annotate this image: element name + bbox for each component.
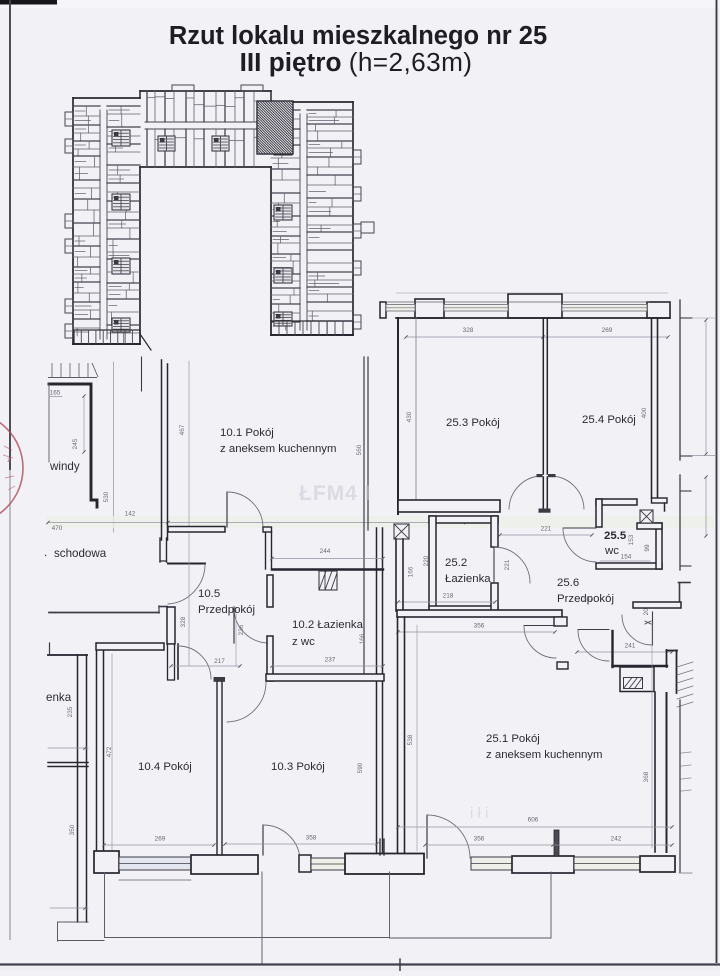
svg-text:590: 590 <box>357 762 364 773</box>
svg-text:328: 328 <box>180 616 187 627</box>
svg-text:enka: enka <box>46 691 72 704</box>
svg-text:220: 220 <box>423 555 430 566</box>
svg-text:windy: windy <box>49 460 80 473</box>
svg-text:218: 218 <box>443 593 454 600</box>
svg-text:154: 154 <box>621 554 632 561</box>
svg-text:269: 269 <box>602 327 613 334</box>
svg-text:356: 356 <box>474 623 485 630</box>
svg-text:356: 356 <box>474 836 485 843</box>
svg-text:350: 350 <box>69 824 76 835</box>
svg-text:z: z <box>7 457 11 464</box>
svg-text:368: 368 <box>643 771 650 782</box>
svg-text:25.1 Pokój: 25.1 Pokój <box>486 733 540 745</box>
svg-text:221: 221 <box>504 559 511 570</box>
svg-text:Przedpokój: Przedpokój <box>198 604 255 616</box>
svg-text:241: 241 <box>625 643 636 650</box>
svg-text:10.3 Pokój: 10.3 Pokój <box>271 761 325 773</box>
svg-text:166: 166 <box>408 566 415 577</box>
svg-text:235: 235 <box>67 706 74 717</box>
svg-text:25.5: 25.5 <box>604 530 627 542</box>
svg-text:10.2 Łazienka: 10.2 Łazienka <box>292 619 364 631</box>
svg-text:606: 606 <box>528 817 539 824</box>
svg-text:142: 142 <box>125 511 136 518</box>
svg-text:schodowa: schodowa <box>54 547 107 560</box>
svg-text:560: 560 <box>356 444 363 455</box>
svg-text:Rzut lokalu mieszkalnego nr 25: Rzut lokalu mieszkalnego nr 25 <box>169 22 547 50</box>
svg-text:z aneksem kuchennym: z aneksem kuchennym <box>220 443 337 455</box>
svg-text:328: 328 <box>463 327 474 334</box>
svg-text:i ł i: i ł i <box>470 805 488 822</box>
svg-text:245: 245 <box>72 438 79 449</box>
svg-text:467: 467 <box>179 424 186 435</box>
svg-text:165: 165 <box>50 390 61 397</box>
svg-text:237: 237 <box>325 657 336 664</box>
svg-text:99: 99 <box>644 544 651 552</box>
svg-text:Łazienka: Łazienka <box>445 573 491 585</box>
svg-text:530: 530 <box>103 491 110 502</box>
svg-text:25.3 Pokój: 25.3 Pokój <box>446 417 500 429</box>
svg-text:10.5: 10.5 <box>198 588 220 600</box>
svg-text:236: 236 <box>238 624 245 635</box>
svg-text:470: 470 <box>52 525 63 532</box>
svg-text:221: 221 <box>541 526 552 533</box>
svg-text:269: 269 <box>155 836 166 843</box>
svg-text:III piętro (h=2,63m): III piętro (h=2,63m) <box>240 47 473 77</box>
svg-text:z aneksem kuchennym: z aneksem kuchennym <box>486 749 603 761</box>
svg-text:244: 244 <box>320 548 331 555</box>
svg-text:ŁFM4 I: ŁFM4 I <box>299 482 372 505</box>
svg-text:387: 387 <box>583 597 593 603</box>
svg-text:25.2: 25.2 <box>445 557 467 569</box>
svg-text:wc: wc <box>604 545 619 557</box>
svg-text:242: 242 <box>611 836 622 843</box>
svg-text:10.4 Pokój: 10.4 Pokój <box>138 761 192 773</box>
svg-text:358: 358 <box>306 835 317 842</box>
svg-text:166: 166 <box>359 633 366 644</box>
svg-text:10.1 Pokój: 10.1 Pokój <box>220 427 274 439</box>
svg-text:400: 400 <box>641 407 648 418</box>
svg-text:217: 217 <box>214 658 225 665</box>
svg-text:.: . <box>44 546 47 559</box>
svg-text:25.6: 25.6 <box>557 577 579 589</box>
svg-text:430: 430 <box>406 411 413 422</box>
svg-text:538: 538 <box>407 734 414 745</box>
svg-text:25.4 Pokój: 25.4 Pokój <box>582 414 636 426</box>
svg-text:153: 153 <box>628 534 635 545</box>
svg-text:z wc: z wc <box>292 636 315 648</box>
